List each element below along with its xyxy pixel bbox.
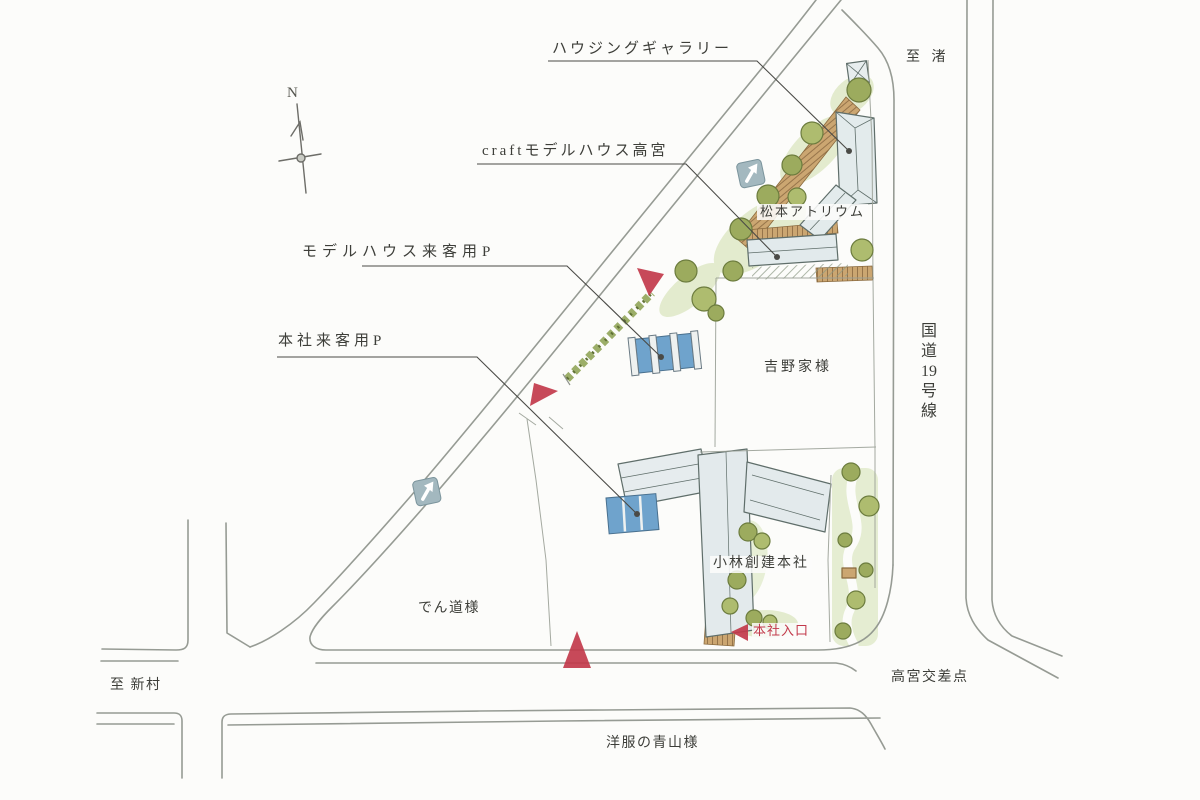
route19-centerline-a [966, 0, 1058, 678]
label-takamiya-intersection: 高宮交差点 [891, 670, 969, 687]
label-craft-model-house: craftモデルハウス高宮 [482, 142, 668, 160]
site-map-drawing [0, 0, 1200, 800]
access-map: N ハウジングギャラリー craftモデルハウス高宮 モデルハウス来客用P 本社… [0, 0, 1200, 800]
label-to-niimura: 至 新村 [110, 678, 162, 695]
model-house-parking-stalls [628, 331, 702, 376]
label-dendo: でん道様 [418, 601, 480, 618]
entrance-marker-icon [530, 383, 558, 406]
one-way-arrow-icon [736, 159, 766, 189]
label-matsumoto-atrium: 松本アトリウム [757, 204, 868, 220]
label-to-nagisa: 至 渚 [906, 50, 950, 67]
label-housing-gallery: ハウジングギャラリー [552, 40, 732, 58]
compass-north-label: N [287, 84, 298, 102]
route19-centerline-b [992, 0, 1062, 656]
one-way-arrow-icon [412, 477, 442, 507]
head-office-parking-stalls [606, 494, 659, 534]
label-yoshinoya: 吉野家様 [764, 360, 832, 377]
diagonal-road-right-edge [310, 0, 893, 650]
label-route-19: 国 道 19 号 線 [916, 322, 942, 422]
label-yofuku-no-aoyama: 洋服の青山様 [606, 736, 699, 753]
label-model-house-parking: モデルハウス来客用P [302, 243, 495, 261]
label-head-office-parking: 本社来客用P [278, 332, 385, 350]
north-compass-icon [279, 104, 321, 193]
entrance-marker-icon [637, 268, 664, 296]
label-head-office-entrance: 本社入口 [752, 623, 810, 639]
leader-lines [277, 61, 852, 517]
label-kobayashi-head-office: 小林創建本社 [710, 556, 812, 573]
